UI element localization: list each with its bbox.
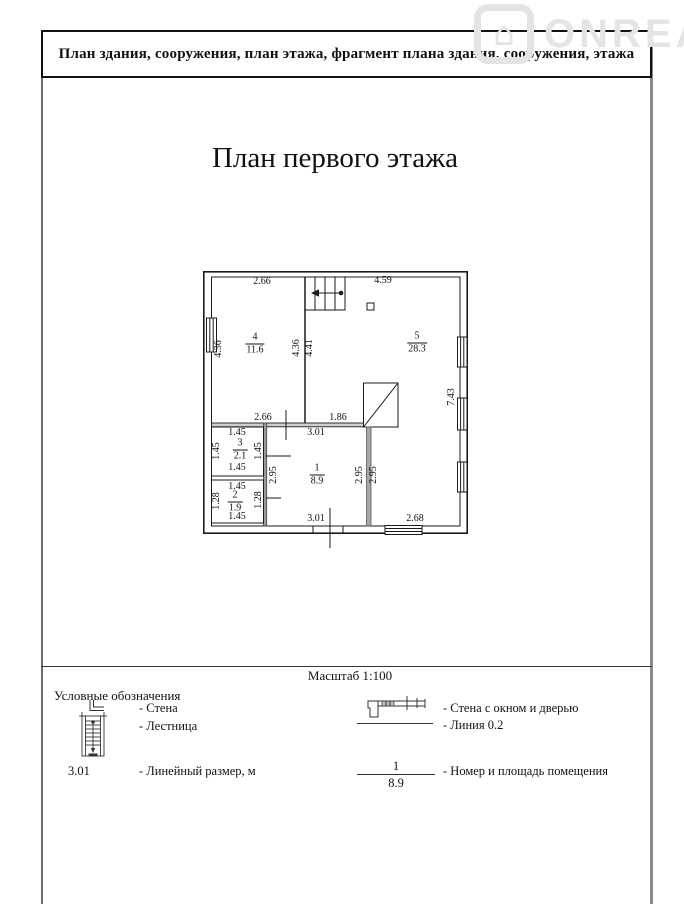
window-right-1 [458,337,468,367]
dim-room3-right: 1.45 [254,442,264,460]
room-5-label: 5 28.3 [407,331,427,356]
room-1-area: 8.9 [310,475,325,488]
room-1-number: 1 [314,463,321,475]
document-page: { "watermark": { "text": "ONREAL" }, "he… [0,0,684,910]
dim-room2-left: 1.28 [212,492,222,510]
room-4-label: 4 11.6 [245,332,264,357]
dim-room1-right-b: 2.95 [369,466,379,484]
dim-room1-bottom: 3.01 [307,514,325,524]
dim-room3-left: 1.45 [212,442,222,460]
dim-hall-width-right: 1.86 [329,413,347,423]
dim-room4-width: 2.66 [253,277,271,287]
floor-plan: 2.66 4.59 4.36 4.36 4.41 7.43 2.66 1.86 … [203,271,468,534]
room-1-label: 1 8.9 [310,463,325,488]
dim-hall-width-left: 2.66 [254,413,272,423]
room-4-number: 4 [251,332,258,344]
legend-linear-label: - Линейный размер, м [139,764,256,779]
legend-wall-label: - Стена [139,701,178,716]
dim-hall-height-right: 4.41 [305,339,315,357]
window-right-2 [458,398,468,430]
chimney [367,303,374,310]
legend-room-example: 1 8.9 [357,759,435,791]
room-2-area: 1.9 [228,502,243,515]
header-title: План здания, сооружения, план этажа, фра… [41,30,652,78]
legend-wall-window-door-label: - Стена с окном и дверью [443,701,578,716]
window-right-3 [458,462,468,492]
legend-room-number: 1 [357,759,435,775]
wall-corner-icon [87,699,105,713]
legend-stairs-label: - Лестница [139,719,197,734]
dim-room2-right: 1.28 [254,491,264,509]
scale-label: Масштаб 1:100 [308,668,392,684]
dim-room1-right-a: 2.95 [355,466,365,484]
page-border-left [41,30,43,904]
floor-plan-title: План первого этажа [212,142,458,175]
outer-wall [204,272,467,533]
room-5-number: 5 [414,331,421,343]
legend-linear-value: 3.01 [68,764,90,779]
wall-window-door-icon [366,696,430,718]
dim-room4-height: 4.36 [214,340,224,358]
stairs-icon [79,712,107,760]
dim-room1-top: 3.01 [307,428,325,438]
room-3-label: 3 2.1 [233,438,248,463]
inner-wall [212,277,461,526]
dim-bottom-right: 2.68 [406,514,424,524]
window-bottom [385,526,422,535]
legend-room-label: - Номер и площадь помещения [443,764,608,779]
room-4-area: 11.6 [245,344,264,357]
stove [364,383,399,427]
line-sample [357,723,433,724]
dim-room5-width: 4.59 [374,276,392,286]
dim-right-total: 7.43 [447,388,457,406]
room-2-number: 2 [232,490,239,502]
stair-start-dot [339,291,344,296]
dim-room3-bottom: 1.45 [228,463,246,473]
legend-room-area: 8.9 [357,775,435,790]
room-3-area: 2.1 [233,450,248,463]
dim-hall-height-left: 4.36 [292,339,302,357]
legend-line-label: - Линия 0.2 [443,718,503,733]
dim-room3-top: 1.45 [228,428,246,438]
staircase [305,277,345,310]
page-border-right [650,30,653,904]
room-3-number: 3 [237,438,244,450]
dim-room1-left: 2.95 [269,466,279,484]
room-5-area: 28.3 [407,343,427,356]
room-2-label: 2 1.9 [228,490,243,515]
